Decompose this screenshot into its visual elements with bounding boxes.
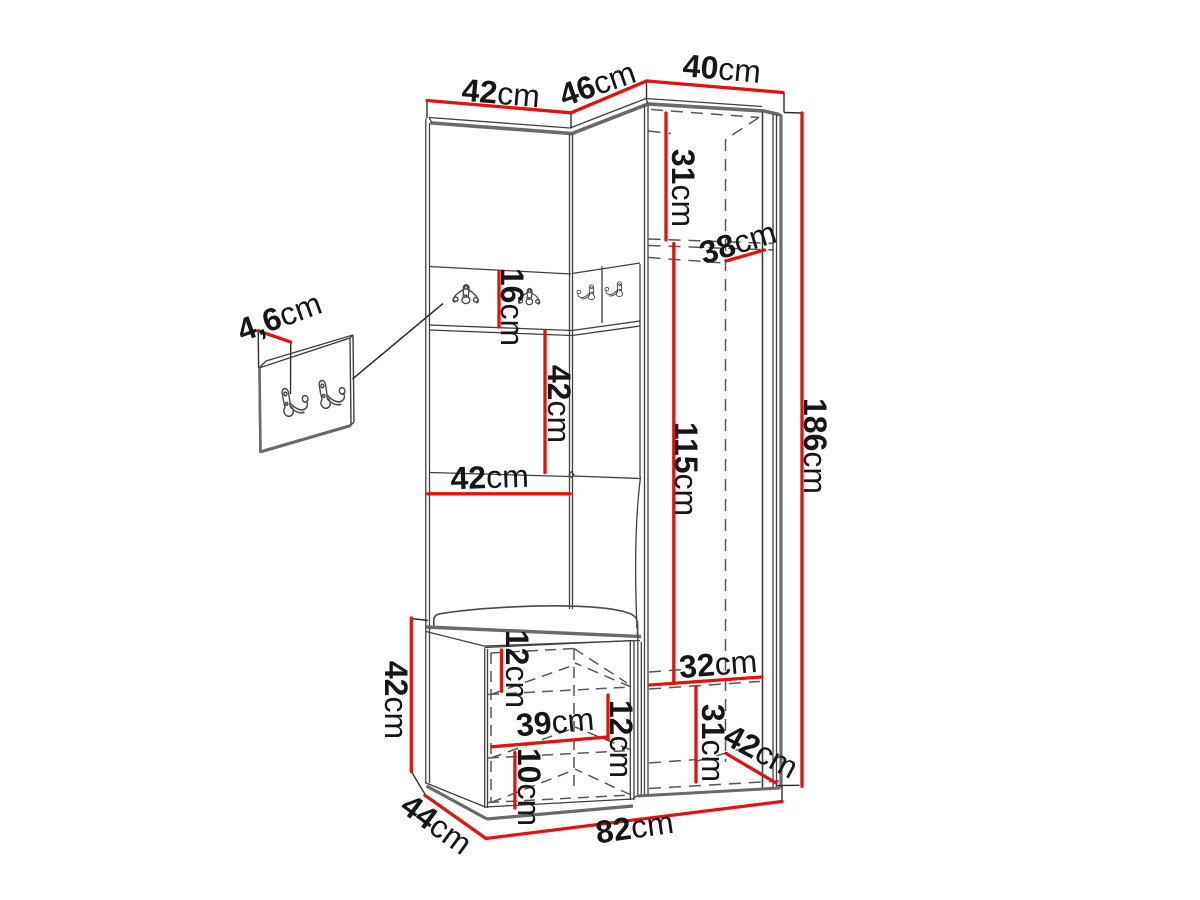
svg-text:12cm: 12cm	[499, 630, 535, 708]
svg-text:12cm: 12cm	[603, 700, 639, 778]
svg-text:42cm: 42cm	[378, 661, 414, 739]
svg-text:10cm: 10cm	[511, 748, 547, 826]
svg-text:16cm: 16cm	[494, 268, 530, 346]
svg-text:42cm: 42cm	[450, 458, 529, 497]
svg-text:40cm: 40cm	[681, 47, 762, 90]
svg-text:39cm: 39cm	[514, 701, 595, 744]
svg-text:42cm: 42cm	[460, 72, 541, 115]
svg-text:31cm: 31cm	[665, 149, 701, 227]
svg-text:115cm: 115cm	[668, 422, 704, 516]
svg-text:186cm: 186cm	[797, 398, 833, 494]
svg-text:32cm: 32cm	[678, 643, 759, 685]
svg-text:42cm: 42cm	[541, 365, 577, 443]
